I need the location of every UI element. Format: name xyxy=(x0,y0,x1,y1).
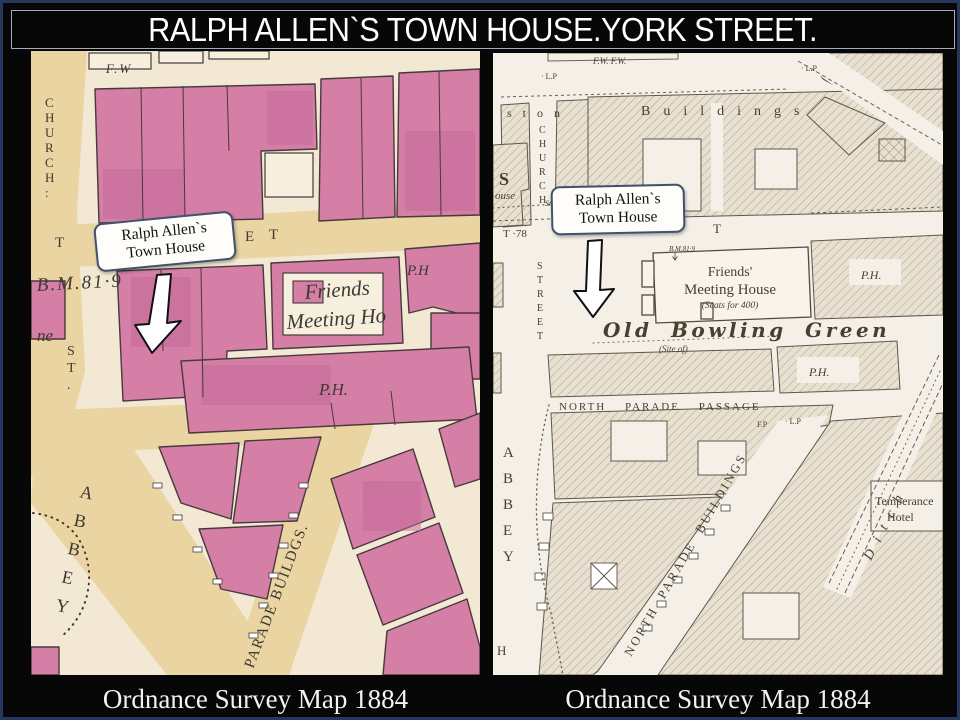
right-label-old-bowling-green: Old Bowling Green xyxy=(603,318,890,342)
right-label-ouse: ouse xyxy=(495,190,515,202)
left-map-caption: Ordnance Survey Map 1884 xyxy=(31,680,480,718)
presentation-slide[interactable]: RALPH ALLEN`S TOWN HOUSE.YORK STREET. xyxy=(0,0,960,720)
right-label-t78: T ·78 xyxy=(503,228,527,240)
right-label-fp: F.P xyxy=(757,420,768,429)
right-callout-line2: Town House xyxy=(559,208,677,229)
right-map-caption-text: Ordnance Survey Map 1884 xyxy=(565,684,870,715)
left-label-friends: Friends xyxy=(303,275,371,304)
left-label-fw: F.W xyxy=(105,61,132,76)
right-label-street-t: T xyxy=(713,221,721,236)
right-map-image: F.W. F.W. · L.P · L.P ston Buildings CHU… xyxy=(493,53,943,675)
right-label-fmh-line2: Meeting House xyxy=(684,282,776,298)
right-label-buildings: Buildings xyxy=(641,104,812,119)
left-label-street-e: E xyxy=(245,229,254,245)
left-label-street-t1: T xyxy=(55,235,64,251)
right-label-fmh-line1: Friends' xyxy=(708,265,753,280)
right-label-hotel-line2: Hotel xyxy=(887,510,914,524)
right-label-h: H xyxy=(497,643,506,658)
left-label-church-street: CHURCH: xyxy=(45,95,55,200)
right-label-ph-top: P.H. xyxy=(860,268,881,282)
right-label-lp3: · L.P xyxy=(785,417,802,426)
left-map-image: F.W CHURCH: T E T B.M.81·9 ne ST. Friend… xyxy=(31,51,480,675)
right-label-site-of: (Site of) xyxy=(659,344,688,354)
left-label-ne: ne xyxy=(37,326,54,345)
right-label-ston: ston xyxy=(507,106,571,120)
right-label-benchmark: B.M.81·9 xyxy=(669,245,695,253)
left-label-ph-mid: P.H. xyxy=(318,380,348,399)
title-box: RALPH ALLEN`S TOWN HOUSE.YORK STREET. xyxy=(11,10,955,49)
left-label-ph-top: P.H xyxy=(406,263,430,279)
right-map-crosshatch-building xyxy=(879,139,905,161)
right-label-s: S xyxy=(499,169,509,189)
right-label-north-parade-passage: NORTH PARADE PASSAGE xyxy=(559,401,761,413)
left-map-caption-text: Ordnance Survey Map 1884 xyxy=(103,684,408,715)
right-label-hotel-line1: Temperance xyxy=(875,494,933,508)
left-map-svg: F.W CHURCH: T E T B.M.81·9 ne ST. Friend… xyxy=(31,51,480,675)
right-label-fw: F.W. F.W. xyxy=(592,56,626,66)
right-callout-box: Ralph Allen`s Town House xyxy=(551,184,686,235)
left-label-street-t2: T xyxy=(269,227,278,243)
right-callout-line1: Ralph Allen`s xyxy=(559,190,677,211)
right-map-caption: Ordnance Survey Map 1884 xyxy=(493,680,943,718)
right-map-svg: F.W. F.W. · L.P · L.P ston Buildings CHU… xyxy=(493,53,943,675)
slide-title: RALPH ALLEN`S TOWN HOUSE.YORK STREET. xyxy=(149,11,818,49)
right-label-lp1: · L.P xyxy=(541,72,558,81)
right-label-ph-mid: P.H. xyxy=(808,365,829,379)
right-label-lp2: · L.P xyxy=(801,64,818,73)
right-label-fmh-line3: (Seats for 400) xyxy=(702,300,758,311)
